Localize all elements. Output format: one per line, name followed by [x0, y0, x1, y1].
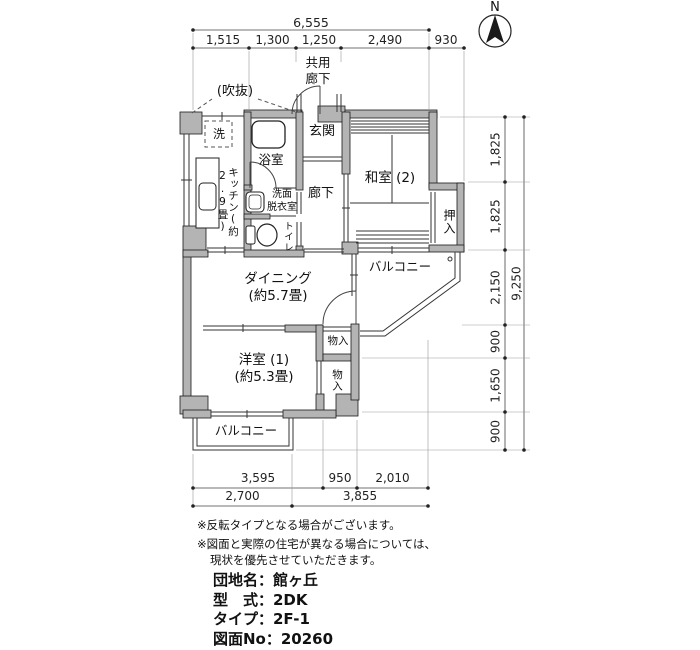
- toilet-bowl-icon: [257, 224, 277, 246]
- room-label-bathroom: 浴室: [250, 152, 292, 168]
- info-drawing-no: 図面No：20260: [213, 628, 333, 649]
- dim-top-seg-2490: 2,490: [358, 33, 412, 48]
- dim-right-seg-1825b: 1,825: [489, 190, 502, 244]
- room-label-hallway: 廊下: [302, 186, 340, 202]
- dim-bottom-seg-2700: 2,700: [214, 489, 271, 504]
- info-plan-type: タイプ：2F-1: [213, 608, 310, 629]
- room-label-japanese-room: 和室 (2): [352, 170, 428, 187]
- info-danchi-name: 団地名：館ヶ丘: [213, 569, 318, 590]
- dim-bottom-seg-950: 950: [317, 471, 363, 486]
- north-arrow-icon: [479, 15, 511, 47]
- kitchen-sink-icon: [199, 183, 216, 210]
- room-label-oshiire: 押入: [440, 201, 455, 243]
- room-label-entrance: 玄関: [303, 124, 341, 140]
- info-type: 型 式：2DK: [213, 589, 308, 610]
- room-label-balcony-bottom: バルコニー: [204, 423, 288, 439]
- room-label-washer: 洗: [210, 127, 228, 142]
- note-line-3: 現状を優先させていただきます。: [210, 552, 381, 568]
- room-label-dining: ダイニング (約5.7畳): [232, 271, 324, 305]
- room-label-common-corridor: 共用 廊下: [299, 55, 337, 86]
- bathtub-icon: [252, 121, 285, 148]
- room-label-washroom: 洗面 脱衣室: [260, 189, 304, 214]
- balcony-door-arc: [323, 291, 356, 324]
- note-line-2: ※図面と実際の住宅が異なる場合については、: [197, 536, 436, 552]
- room-label-western-room: 洋室 (1) (約5.3畳): [216, 352, 312, 386]
- dim-top-seg-930: 930: [422, 33, 470, 48]
- dim-top-total: 6,555: [261, 15, 361, 31]
- dim-top-seg-1300: 1,300: [246, 33, 299, 48]
- room-label-storage-upper: 物入: [324, 335, 352, 348]
- room-label-kitchen: キッチン(約2.9畳): [223, 151, 238, 253]
- dim-bottom-seg-3595: 3,595: [230, 471, 286, 486]
- dim-right-seg-2150: 2,150: [489, 261, 502, 315]
- room-label-void: (吹抜): [203, 84, 267, 100]
- dim-bottom-seg-2010: 2,010: [364, 471, 421, 486]
- dim-top-seg-1250: 1,250: [293, 33, 345, 48]
- north-label: N: [487, 0, 503, 16]
- note-line-1: ※反転タイプとなる場合がございます。: [197, 517, 401, 533]
- dim-right-seg-1825a: 1,825: [489, 123, 502, 177]
- dim-right-total: 9,250: [510, 257, 523, 311]
- dim-right-seg-900b: 900: [489, 405, 502, 459]
- floorplan-page: N 6,555 1,515 1,300 1,250 2,490 930 1,82…: [0, 0, 700, 650]
- room-label-toilet: トイレ: [279, 220, 292, 254]
- room-label-balcony-right: バルコニー: [360, 259, 440, 275]
- dim-bottom-seg-3855: 3,855: [331, 489, 389, 504]
- room-label-storage-lower: 物入: [329, 363, 342, 397]
- dim-top-seg-1515: 1,515: [196, 33, 250, 48]
- toilet-tank-icon: [246, 226, 255, 244]
